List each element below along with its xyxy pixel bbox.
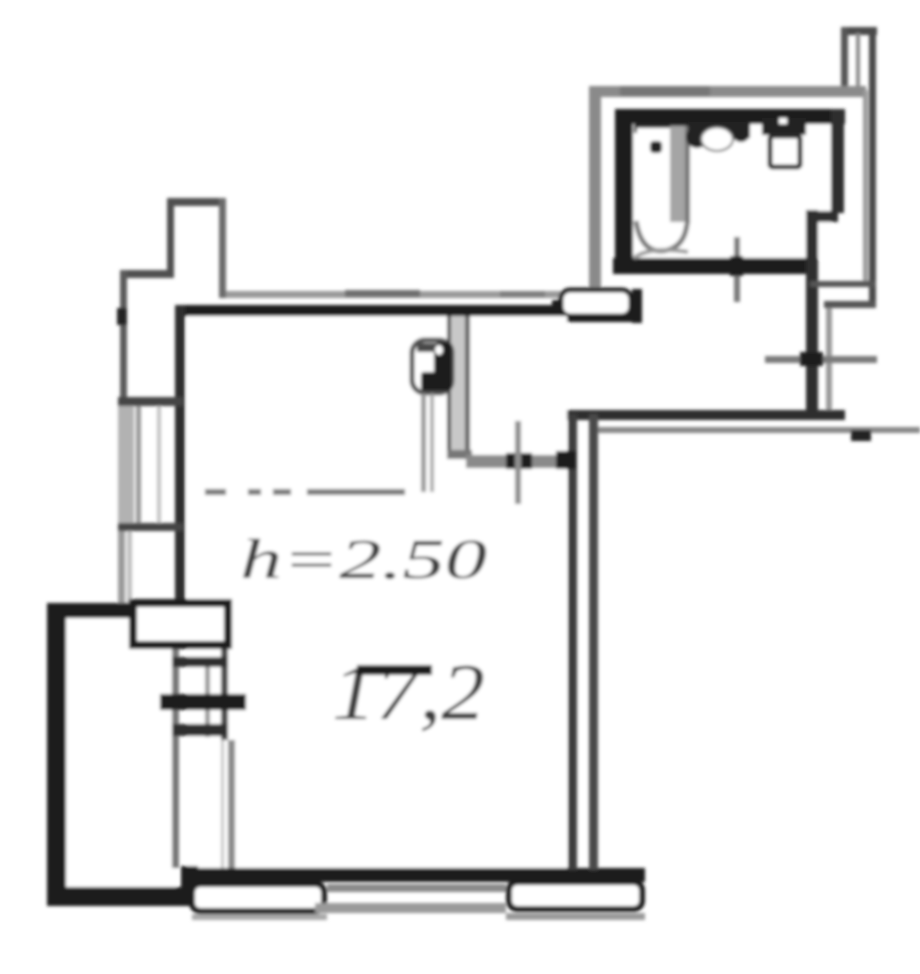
- svg-text:17,2: 17,2: [332, 649, 485, 737]
- svg-text:h=2.50: h=2.50: [240, 529, 487, 591]
